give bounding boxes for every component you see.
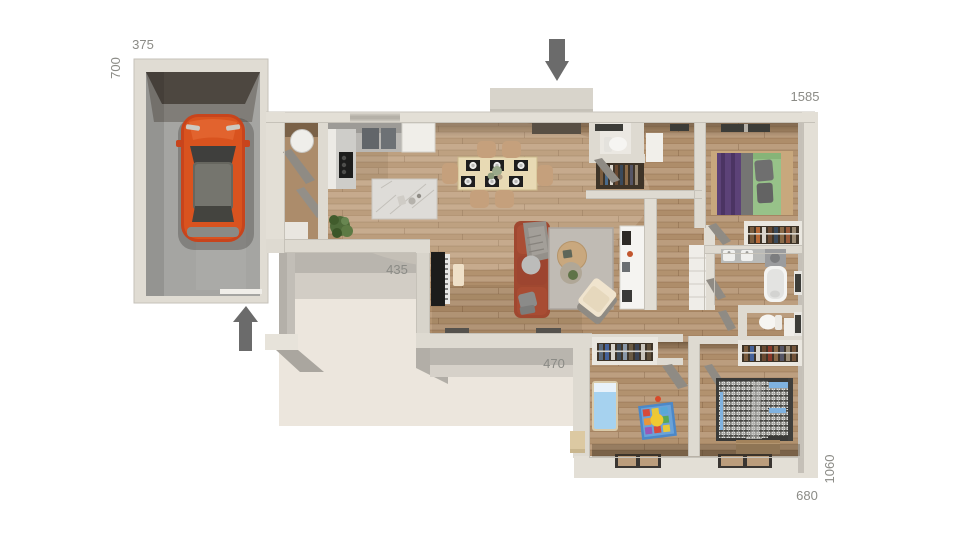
svg-text:435: 435 bbox=[386, 262, 408, 277]
svg-text:375: 375 bbox=[132, 37, 154, 52]
svg-text:700: 700 bbox=[108, 57, 123, 79]
svg-text:1585: 1585 bbox=[791, 89, 820, 104]
svg-text:680: 680 bbox=[796, 488, 818, 503]
svg-text:1060: 1060 bbox=[822, 455, 837, 484]
svg-text:470: 470 bbox=[543, 356, 565, 371]
